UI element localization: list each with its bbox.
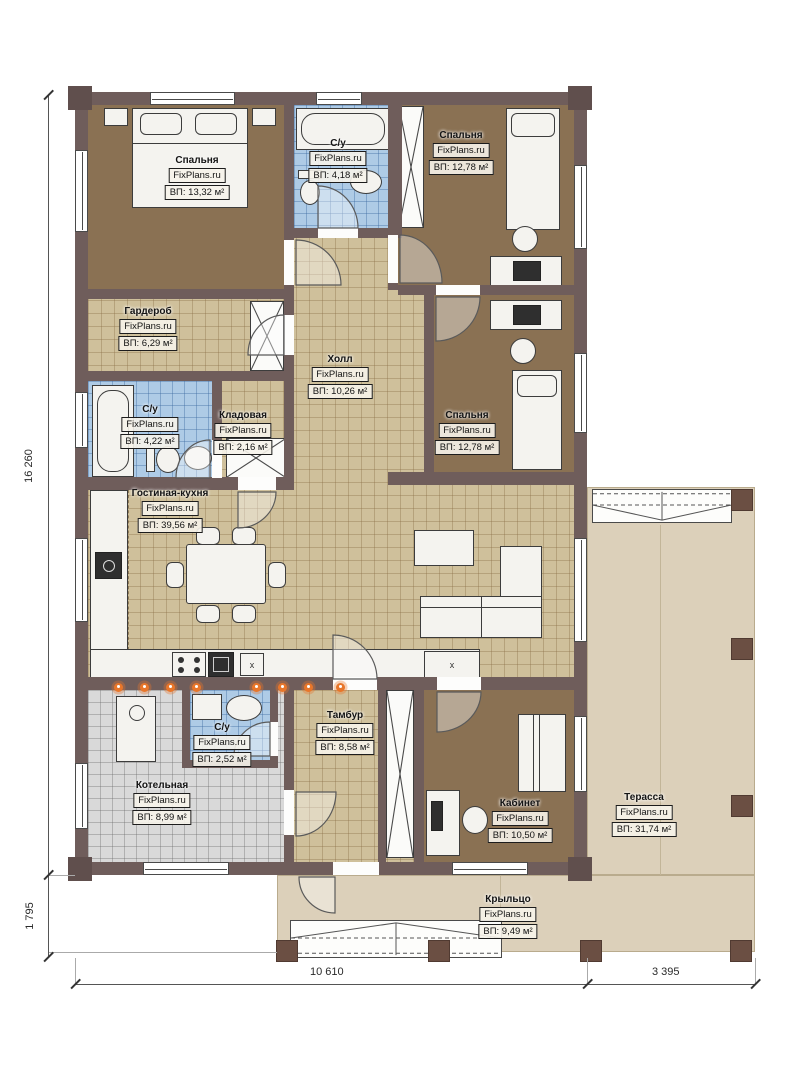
office-chair bbox=[462, 806, 488, 834]
desk bbox=[490, 256, 562, 286]
room-label-bathroom-top: С/у FixPlans.ru ВП: 4,18 м² bbox=[308, 138, 367, 183]
room-name: Тамбур bbox=[327, 710, 363, 721]
partition bbox=[378, 690, 386, 862]
room-area: ВП: 9,49 м² bbox=[478, 924, 537, 939]
room-label-bedroom-tr: Спальня FixPlans.ru ВП: 12,78 м² bbox=[429, 130, 494, 175]
room-area: ВП: 8,99 м² bbox=[132, 810, 191, 825]
door-arc bbox=[176, 440, 210, 478]
door-arc bbox=[318, 186, 358, 228]
computer bbox=[431, 801, 443, 831]
extension-line bbox=[48, 952, 277, 953]
partition bbox=[284, 690, 294, 862]
room-label-tambour: Тамбур FixPlans.ru ВП: 8,58 м² bbox=[315, 710, 374, 755]
room-label-office: Кабинет FixPlans.ru ВП: 10,50 м² bbox=[488, 798, 553, 843]
washing-machine bbox=[192, 694, 222, 720]
stove bbox=[172, 652, 206, 677]
watermark: FixPlans.ru bbox=[119, 319, 177, 334]
watermark: FixPlans.ru bbox=[168, 168, 226, 183]
boiler-unit bbox=[116, 696, 156, 762]
room-area: ВП: 8,58 м² bbox=[315, 740, 374, 755]
watermark: FixPlans.ru bbox=[615, 805, 673, 820]
room-name: Спальня bbox=[445, 410, 488, 421]
dimension-line-bottom-terrace bbox=[587, 984, 755, 985]
partition bbox=[75, 371, 294, 381]
door-arc bbox=[400, 235, 442, 283]
room-area: ВП: 13,32 м² bbox=[165, 185, 230, 200]
terrace-post bbox=[731, 489, 753, 511]
room-label-bathroom-mid: С/у FixPlans.ru ВП: 4,22 м² bbox=[120, 404, 179, 449]
dimension-line-left-porch bbox=[48, 875, 49, 958]
sofa-seat bbox=[420, 596, 542, 638]
door-arc bbox=[436, 297, 480, 341]
room-label-hall: Холл FixPlans.ru ВП: 10,26 м² bbox=[308, 354, 373, 399]
room-name: Терасса bbox=[624, 792, 664, 803]
printer bbox=[513, 261, 541, 281]
door-opening bbox=[284, 790, 294, 835]
door-opening bbox=[238, 477, 276, 490]
dimension-line-bottom bbox=[75, 984, 587, 985]
door-opening bbox=[284, 315, 294, 355]
door-opening bbox=[270, 722, 278, 756]
watermark: FixPlans.ru bbox=[214, 423, 272, 438]
room-label-bathroom-bottom: С/у FixPlans.ru ВП: 2,52 м² bbox=[192, 722, 251, 767]
watermark: FixPlans.ru bbox=[438, 423, 496, 438]
watermark: FixPlans.ru bbox=[141, 501, 199, 516]
dining-table bbox=[186, 544, 266, 604]
window bbox=[574, 165, 587, 249]
room-area: ВП: 12,78 м² bbox=[435, 440, 500, 455]
flame-icon bbox=[304, 683, 313, 692]
room-label-storage: Кладовая FixPlans.ru ВП: 2,16 м² bbox=[213, 410, 272, 455]
window bbox=[143, 862, 229, 875]
room-area: ВП: 10,26 м² bbox=[308, 384, 373, 399]
terrace-post bbox=[731, 795, 753, 817]
dimension-label-left-porch: 1 795 bbox=[24, 902, 36, 930]
wall-corner bbox=[68, 857, 92, 881]
partition bbox=[414, 690, 424, 862]
room-name: С/у bbox=[214, 722, 230, 733]
room-name: С/у bbox=[330, 138, 346, 149]
kitchen-counter-bottom bbox=[90, 649, 480, 679]
room-label-bedroom-mr: Спальня FixPlans.ru ВП: 12,78 м² bbox=[435, 410, 500, 455]
door-arc bbox=[437, 692, 481, 732]
room-name: Холл bbox=[327, 354, 352, 365]
terrace-steps bbox=[592, 489, 732, 523]
room-label-porch: Крыльцо FixPlans.ru ВП: 9,49 м² bbox=[478, 894, 537, 939]
flame-icon bbox=[252, 683, 261, 692]
room-label-terrace: Терасса FixPlans.ru ВП: 31,74 м² bbox=[612, 792, 677, 837]
flame-icon bbox=[336, 683, 345, 692]
chair bbox=[196, 605, 220, 623]
pillow bbox=[511, 113, 555, 137]
extension-line bbox=[75, 958, 76, 984]
coffee-table bbox=[414, 530, 474, 566]
kitchen-zone-line bbox=[128, 490, 129, 650]
partition bbox=[75, 289, 294, 299]
partition bbox=[388, 472, 574, 485]
blanket-line bbox=[133, 143, 247, 144]
chair bbox=[232, 527, 256, 545]
entry-door-arc bbox=[299, 877, 335, 913]
room-label-boiler: Котельная FixPlans.ru ВП: 8,99 м² bbox=[132, 780, 191, 825]
door-opening bbox=[388, 235, 398, 283]
room-label-living-kitchen: Гостиная-кухня FixPlans.ru ВП: 39,56 м² bbox=[132, 488, 209, 533]
porch-post bbox=[730, 940, 752, 962]
extension-line bbox=[587, 958, 588, 984]
pillow bbox=[195, 113, 237, 135]
window bbox=[574, 716, 587, 792]
stool bbox=[510, 338, 536, 364]
porch-post bbox=[276, 940, 298, 962]
door-opening bbox=[318, 228, 358, 238]
dimension-line-left bbox=[48, 95, 49, 875]
terrace-sliding-door bbox=[574, 538, 587, 642]
flame-icon bbox=[140, 683, 149, 692]
wall-corner bbox=[568, 86, 592, 110]
chair bbox=[232, 605, 256, 623]
wall-corner bbox=[68, 86, 92, 110]
room-name: Кладовая bbox=[219, 410, 267, 421]
dimension-label-bottom: 10 610 bbox=[310, 966, 344, 978]
partition bbox=[75, 677, 587, 690]
window bbox=[452, 862, 528, 875]
room-name: Гардероб bbox=[124, 306, 171, 317]
room-name: Спальня bbox=[175, 155, 218, 166]
room-name: Гостиная-кухня bbox=[132, 488, 209, 499]
window bbox=[574, 353, 587, 433]
watermark: FixPlans.ru bbox=[432, 143, 490, 158]
window bbox=[75, 538, 88, 622]
door-arc bbox=[296, 792, 336, 836]
door-arc bbox=[238, 492, 276, 528]
pillow bbox=[140, 113, 182, 135]
room-label-bedroom-tl: Спальня FixPlans.ru ВП: 13,32 м² bbox=[165, 155, 230, 200]
nightstand bbox=[252, 108, 276, 126]
room-area: ВП: 6,29 м² bbox=[118, 336, 177, 351]
extension-line bbox=[48, 875, 75, 876]
desk bbox=[426, 790, 460, 856]
watermark: FixPlans.ru bbox=[479, 907, 537, 922]
room-area: ВП: 39,56 м² bbox=[138, 518, 203, 533]
door-opening bbox=[437, 677, 481, 690]
watermark: FixPlans.ru bbox=[309, 151, 367, 166]
door-opening bbox=[436, 285, 480, 295]
toilet-tank bbox=[146, 448, 155, 472]
dimension-label-left: 16 260 bbox=[23, 449, 35, 483]
door-arc bbox=[333, 635, 377, 679]
partition bbox=[182, 690, 190, 768]
flame-icon bbox=[166, 683, 175, 692]
flame-icon bbox=[114, 683, 123, 692]
dimension-label-bottom-terrace: 3 395 bbox=[652, 966, 680, 978]
office-wardrobe bbox=[518, 714, 566, 792]
watermark: FixPlans.ru bbox=[193, 735, 251, 750]
flame-icon bbox=[192, 683, 201, 692]
room-area: ВП: 12,78 м² bbox=[429, 160, 494, 175]
entry-door-opening bbox=[333, 862, 379, 875]
sink-bowl bbox=[103, 560, 115, 572]
room-name: Кабинет bbox=[500, 798, 540, 809]
partition bbox=[424, 295, 434, 485]
window bbox=[75, 763, 88, 829]
room-name: Котельная bbox=[136, 780, 188, 791]
sink bbox=[226, 695, 262, 721]
window bbox=[150, 92, 235, 105]
room-area: ВП: 10,50 м² bbox=[488, 828, 553, 843]
partition bbox=[398, 285, 574, 295]
watermark: FixPlans.ru bbox=[491, 811, 549, 826]
floor-plan: x x bbox=[0, 0, 792, 1080]
oven bbox=[208, 652, 234, 677]
closet bbox=[386, 690, 414, 858]
stool bbox=[512, 226, 538, 252]
chair bbox=[268, 562, 286, 588]
single-bed bbox=[512, 370, 562, 470]
room-label-wardrobe: Гардероб FixPlans.ru ВП: 6,29 м² bbox=[118, 306, 177, 351]
flame-icon bbox=[278, 683, 287, 692]
nightstand bbox=[104, 108, 128, 126]
kitchen-unit: x bbox=[424, 651, 480, 679]
window bbox=[75, 392, 88, 448]
door-arc bbox=[248, 315, 284, 355]
single-bed bbox=[506, 108, 560, 230]
window bbox=[316, 92, 362, 105]
extension-line bbox=[755, 958, 756, 984]
porch-post bbox=[580, 940, 602, 962]
pillow bbox=[517, 375, 557, 397]
room-area: ВП: 4,18 м² bbox=[308, 168, 367, 183]
room-name: Спальня bbox=[439, 130, 482, 141]
porch-steps bbox=[290, 920, 502, 958]
room-area: ВП: 31,74 м² bbox=[612, 822, 677, 837]
kitchen-unit: x bbox=[240, 653, 264, 676]
room-area: ВП: 4,22 м² bbox=[120, 434, 179, 449]
wall-corner bbox=[568, 857, 592, 881]
kitchen-sink bbox=[95, 552, 122, 579]
door-arc bbox=[296, 240, 341, 285]
watermark: FixPlans.ru bbox=[121, 417, 179, 432]
watermark: FixPlans.ru bbox=[316, 723, 374, 738]
watermark: FixPlans.ru bbox=[311, 367, 369, 382]
desk bbox=[490, 300, 562, 330]
room-name: С/у bbox=[142, 404, 158, 415]
porch-post bbox=[428, 940, 450, 962]
printer bbox=[513, 305, 541, 325]
toilet-bowl bbox=[300, 180, 320, 205]
door-opening bbox=[284, 240, 294, 285]
room-area: ВП: 2,52 м² bbox=[192, 752, 251, 767]
terrace-post bbox=[731, 638, 753, 660]
chair bbox=[166, 562, 184, 588]
room-name: Крыльцо bbox=[485, 894, 531, 905]
window bbox=[75, 150, 88, 232]
watermark: FixPlans.ru bbox=[133, 793, 191, 808]
room-area: ВП: 2,16 м² bbox=[213, 440, 272, 455]
